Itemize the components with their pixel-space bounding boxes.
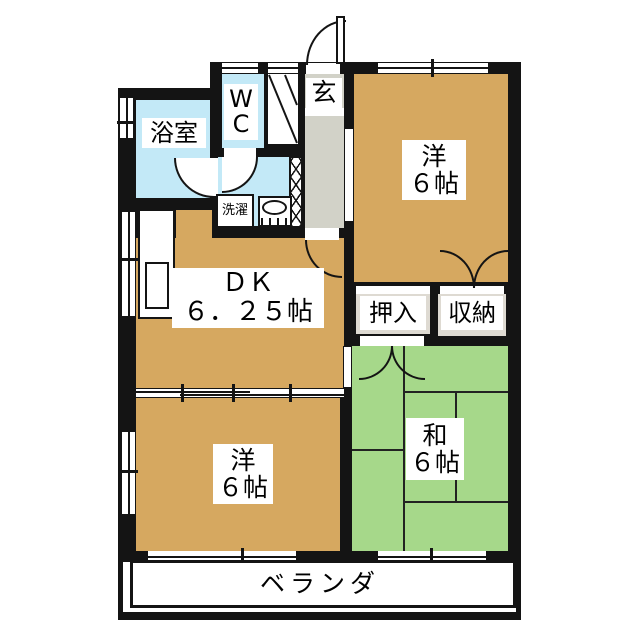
window-tick	[117, 121, 136, 124]
entry-closet-diagonal	[268, 74, 298, 144]
veranda-text: ベランダ	[260, 570, 380, 598]
room-dk-kitchen-strip	[176, 210, 212, 240]
tatami-line	[352, 449, 403, 451]
label-bathroom: 浴室	[142, 118, 206, 148]
veranda-side-right	[516, 562, 521, 620]
tatami-line	[403, 346, 405, 551]
label-entrance: 玄	[306, 78, 342, 108]
hall-western-door-band	[344, 128, 354, 222]
washitsu-text-line2: ６帖	[410, 449, 460, 477]
window-line	[126, 98, 128, 138]
laundry-text: 洗濯	[222, 204, 248, 218]
label-western-bottom: 洋 ６帖	[213, 444, 273, 504]
oshiire-top-band	[356, 286, 430, 294]
window-line	[222, 67, 258, 69]
label-dk: ＤＫ ６．２５帖	[172, 268, 324, 328]
partition-tick	[232, 384, 235, 402]
floor-plan: 洗濯 ベランダ 浴室 W C 玄 洋 ６帖 ＤＫ ６．２５帖 押入 収納 和 ６…	[0, 0, 640, 640]
dk-door-opening	[305, 228, 339, 240]
veranda-outer-edge	[118, 612, 521, 620]
shuno-text: 収納	[448, 300, 496, 326]
label-laundry: 洗濯	[219, 198, 251, 224]
entry-step-band	[305, 108, 344, 116]
washbasin-grill	[261, 218, 289, 225]
washitsu-side-opening	[343, 346, 352, 388]
label-oshiire: 押入	[360, 296, 426, 330]
label-wc: W C	[224, 84, 258, 140]
western-top-text-line1: 洋	[421, 143, 446, 171]
window-line	[148, 556, 296, 558]
label-washitsu: 和 ６帖	[406, 418, 464, 480]
kitchen-sink	[145, 262, 169, 309]
entrance-door-leaf	[336, 16, 345, 64]
partition-tick	[289, 384, 292, 402]
window-line	[268, 67, 298, 69]
label-western-top: 洋 ６帖	[402, 140, 466, 200]
sliding-partition	[136, 388, 344, 398]
western-bottom-text-line2: ６帖	[218, 474, 268, 502]
entrance-text: 玄	[311, 79, 336, 107]
oshiire-text: 押入	[369, 300, 417, 326]
window-tick	[431, 59, 434, 77]
label-shuno: 収納	[441, 296, 503, 330]
veranda-side-left	[118, 562, 123, 620]
wc-door-opening	[224, 148, 256, 157]
wc-text-line1: W	[229, 87, 253, 112]
dk-text-line1: ＤＫ	[222, 269, 274, 298]
washitsu-text-line1: 和	[422, 422, 447, 450]
window-line	[128, 212, 130, 316]
bathroom-text: 浴室	[150, 120, 198, 146]
wc-text-line2: C	[233, 112, 250, 137]
label-veranda: ベランダ	[230, 566, 410, 602]
exterior-notch	[0, 0, 210, 88]
partition-tick	[181, 384, 184, 402]
window-line	[128, 432, 130, 514]
western-top-text-line2: ６帖	[409, 170, 459, 198]
shoe-cabinet-hatch	[291, 158, 301, 226]
dk-text-line2: ６．２５帖	[183, 298, 313, 327]
washbasin-bowl	[262, 200, 287, 215]
window-tick	[119, 258, 138, 261]
western-bottom-text-line1: 洋	[230, 447, 255, 475]
window-tick	[119, 470, 138, 473]
oshiire-door-opening	[360, 336, 424, 346]
partition-line	[180, 394, 344, 396]
